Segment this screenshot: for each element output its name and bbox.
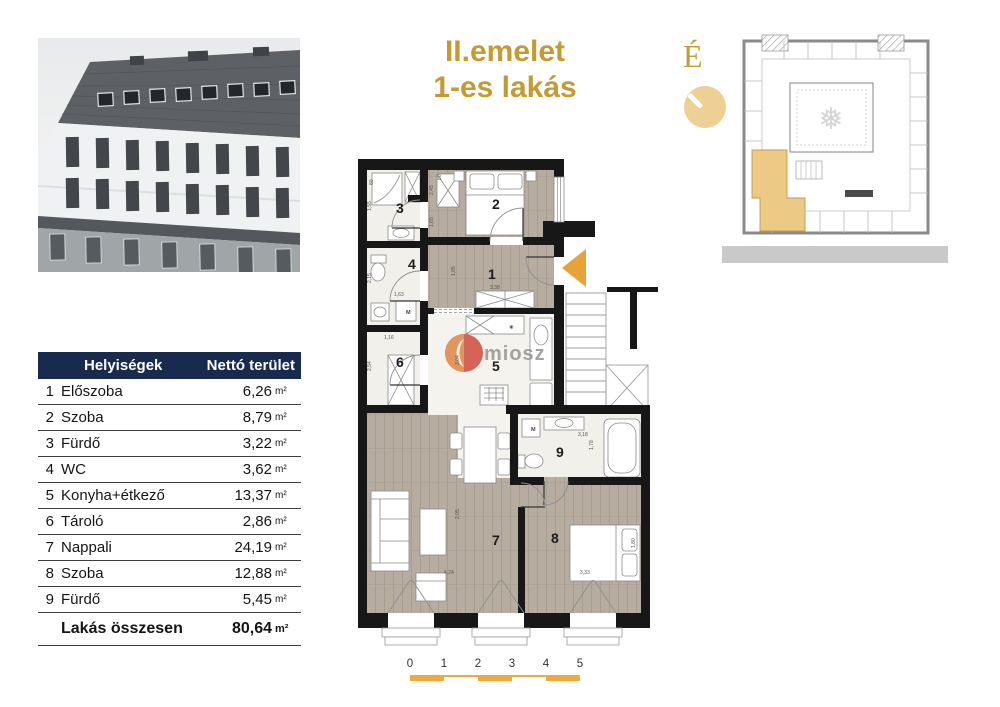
scale-tick: 2 (475, 658, 481, 670)
toilet2-tank (518, 455, 525, 468)
building-photo (38, 38, 300, 277)
building-overview-plan: ❅ (712, 33, 950, 270)
table-cell-val: 3,62 (243, 461, 272, 478)
scale-segment (410, 675, 444, 681)
dimension-label: 1,85 (451, 266, 457, 276)
scale-segment (478, 675, 512, 681)
washing-machine-label: M (406, 310, 411, 316)
overview-corner-hatch-right (878, 35, 904, 51)
overview-lift (845, 190, 873, 197)
room-label-6: 6 (396, 354, 404, 370)
table-cell-val: 2,86 (243, 513, 272, 530)
page: II.emelet 1-es lakás É ❅ (0, 0, 1000, 707)
table-body: 1Előszoba6,26m²2Szoba8,79m²3Fürdő3,22m²4… (38, 379, 301, 613)
dimension-label: 3,33 (580, 570, 590, 576)
kitchen-sink (534, 325, 548, 345)
total-label: Lakás összesen (61, 620, 183, 638)
overview-graphic: ❅ (712, 33, 950, 265)
room-label-5: 5 (492, 358, 500, 374)
dimension-label: 1,16 (384, 335, 394, 341)
table-cell-nm: Fürdő (61, 591, 100, 608)
room-label-2: 2 (492, 196, 500, 212)
dimension-label: 2,05 (455, 509, 461, 519)
dimension-label: 3,18 (578, 432, 588, 438)
table-cell-val: 13,37 (234, 487, 272, 504)
table-cell-nm: WC (61, 461, 86, 478)
page-title: II.emelet 1-es lakás (365, 34, 645, 106)
table-row: 7Nappali24,19m² (38, 535, 301, 561)
header-rooms: Helyiségek (84, 357, 162, 374)
dimension-label: 1,80 (631, 538, 637, 548)
floor-plan-graphic: miosz (358, 143, 658, 648)
room-label-4: 4 (408, 256, 416, 272)
table-cell-unit: m² (275, 438, 301, 449)
toilet-tank (371, 255, 386, 263)
bed8-pillow (622, 554, 637, 576)
bed-pillow (498, 174, 522, 189)
table-cell-num: 9 (38, 591, 54, 608)
dimension-label: 1,78 (589, 440, 595, 450)
room-label-1: 1 (488, 266, 496, 282)
room2-window (554, 177, 564, 222)
table-cell-unit: m² (275, 464, 301, 475)
table-cell-unit: m² (275, 386, 301, 397)
building-photo-graphic (38, 38, 300, 272)
table-cell-val: 8,79 (243, 409, 272, 426)
dimension-label: 4,24 (444, 570, 454, 576)
table-cell-num: 4 (38, 461, 54, 478)
scale-segment (512, 675, 546, 677)
dimension-label: 2,54 (367, 361, 373, 371)
table-cell-nm: Előszoba (61, 383, 123, 400)
scale-tick: 3 (509, 658, 515, 670)
scale-bar: 012345 (408, 658, 586, 690)
kitchen-counter-top (466, 316, 524, 334)
table-row: 5Konyha+étkező13,37m² (38, 483, 301, 509)
dining-table (464, 427, 496, 483)
table-cell-nm: Szoba (61, 409, 104, 426)
table-cell-nm: Szoba (61, 565, 104, 582)
bathtub-inner (608, 423, 636, 473)
table-cell-num: 3 (38, 435, 54, 452)
dimension-label: 1,65 (429, 217, 435, 227)
table-total-row: Lakás összesen 80,64 m² (38, 613, 301, 646)
table-cell-num: 7 (38, 539, 54, 556)
fridge (530, 383, 552, 407)
sofa (371, 491, 409, 571)
table-row: 2Szoba8,79m² (38, 405, 301, 431)
room-label-7: 7 (492, 532, 500, 548)
header-net-area: Nettó terület (207, 357, 295, 374)
nightstand (454, 171, 464, 181)
dimension-label: 1,55 (367, 201, 373, 211)
total-value: 80,64 (232, 620, 272, 638)
overview-stair-core (796, 161, 822, 179)
table-cell-num: 6 (38, 513, 54, 530)
table-cell-val: 6,26 (243, 383, 272, 400)
coffee-table (420, 509, 446, 555)
room3-basin (393, 229, 409, 238)
chair (498, 459, 510, 475)
dimension-label: 2,45 (429, 185, 435, 195)
nightstand (526, 171, 536, 181)
dimension-label: 1,63 (394, 292, 404, 298)
room-label-9: 9 (556, 444, 564, 460)
table-row: 8Szoba12,88m² (38, 561, 301, 587)
chair (450, 433, 462, 449)
table-row: 4WC3,62m² (38, 457, 301, 483)
table-cell-num: 8 (38, 565, 54, 582)
table-header: Helyiségek Nettó terület (38, 352, 301, 379)
table-cell-num: 5 (38, 487, 54, 504)
table-cell-unit: m² (275, 412, 301, 423)
table-cell-nm: Fürdő (61, 435, 100, 452)
table-row: 1Előszoba6,26m² (38, 379, 301, 405)
chair (498, 433, 510, 449)
scale-tick: 4 (543, 658, 549, 670)
scale-tick: 0 (407, 658, 413, 670)
table-cell-nm: Tároló (61, 513, 104, 530)
table-cell-val: 12,88 (234, 565, 272, 582)
table-cell-unit: m² (275, 594, 301, 605)
scale-segment (444, 675, 478, 677)
courtyard-ornament-icon: ❅ (818, 103, 843, 136)
table-cell-unit: m² (275, 568, 301, 579)
scale-segment (546, 675, 580, 681)
table-row: 6Tároló2,86m² (38, 509, 301, 535)
table-cell-val: 3,22 (243, 435, 272, 452)
table-cell-num: 2 (38, 409, 54, 426)
table-cell-val: 24,19 (234, 539, 272, 556)
washing-machine-label: M (531, 427, 536, 433)
open-passage (434, 310, 474, 313)
table-cell-val: 5,45 (243, 591, 272, 608)
total-unit: m² (275, 623, 301, 635)
table-cell-unit: m² (275, 490, 301, 501)
table-cell-num: 1 (38, 383, 54, 400)
dimension-label: 3,04 (455, 355, 461, 365)
scale-tick: 1 (441, 658, 447, 670)
toilet2 (525, 454, 543, 468)
room9-basin (555, 419, 573, 428)
hob-icon: ✳ (509, 324, 514, 331)
armchair (416, 573, 446, 601)
dimension-label: 80 (437, 174, 443, 180)
table-cell-unit: m² (275, 542, 301, 553)
chair (450, 459, 462, 475)
table-row: 9Fürdő5,45m² (38, 587, 301, 613)
compass-needle (687, 93, 703, 109)
title-floor: II.emelet (365, 34, 645, 70)
dimension-label: 2,15 (367, 273, 373, 283)
toilet (371, 263, 385, 281)
scale-tick: 5 (577, 658, 583, 670)
table-row: 3Fürdő3,22m² (38, 431, 301, 457)
table-cell-nm: Nappali (61, 539, 112, 556)
dimension-label: 3,38 (490, 285, 500, 291)
room-area-table: Helyiségek Nettó terület 1Előszoba6,26m²… (38, 352, 301, 646)
dimension-label: 80 (369, 179, 375, 185)
table-cell-unit: m² (275, 516, 301, 527)
room-label-8: 8 (551, 530, 559, 546)
overview-street (722, 246, 948, 263)
table-cell-nm: Konyha+étkező (61, 487, 165, 504)
entrance-arrow-icon (562, 249, 586, 287)
compass-north-label: É (683, 38, 703, 75)
title-apartment: 1-es lakás (365, 70, 645, 106)
room4-basin (374, 307, 386, 317)
floor-plan: miosz (358, 143, 658, 653)
bed-pillow (470, 174, 494, 189)
room-label-3: 3 (396, 200, 404, 216)
